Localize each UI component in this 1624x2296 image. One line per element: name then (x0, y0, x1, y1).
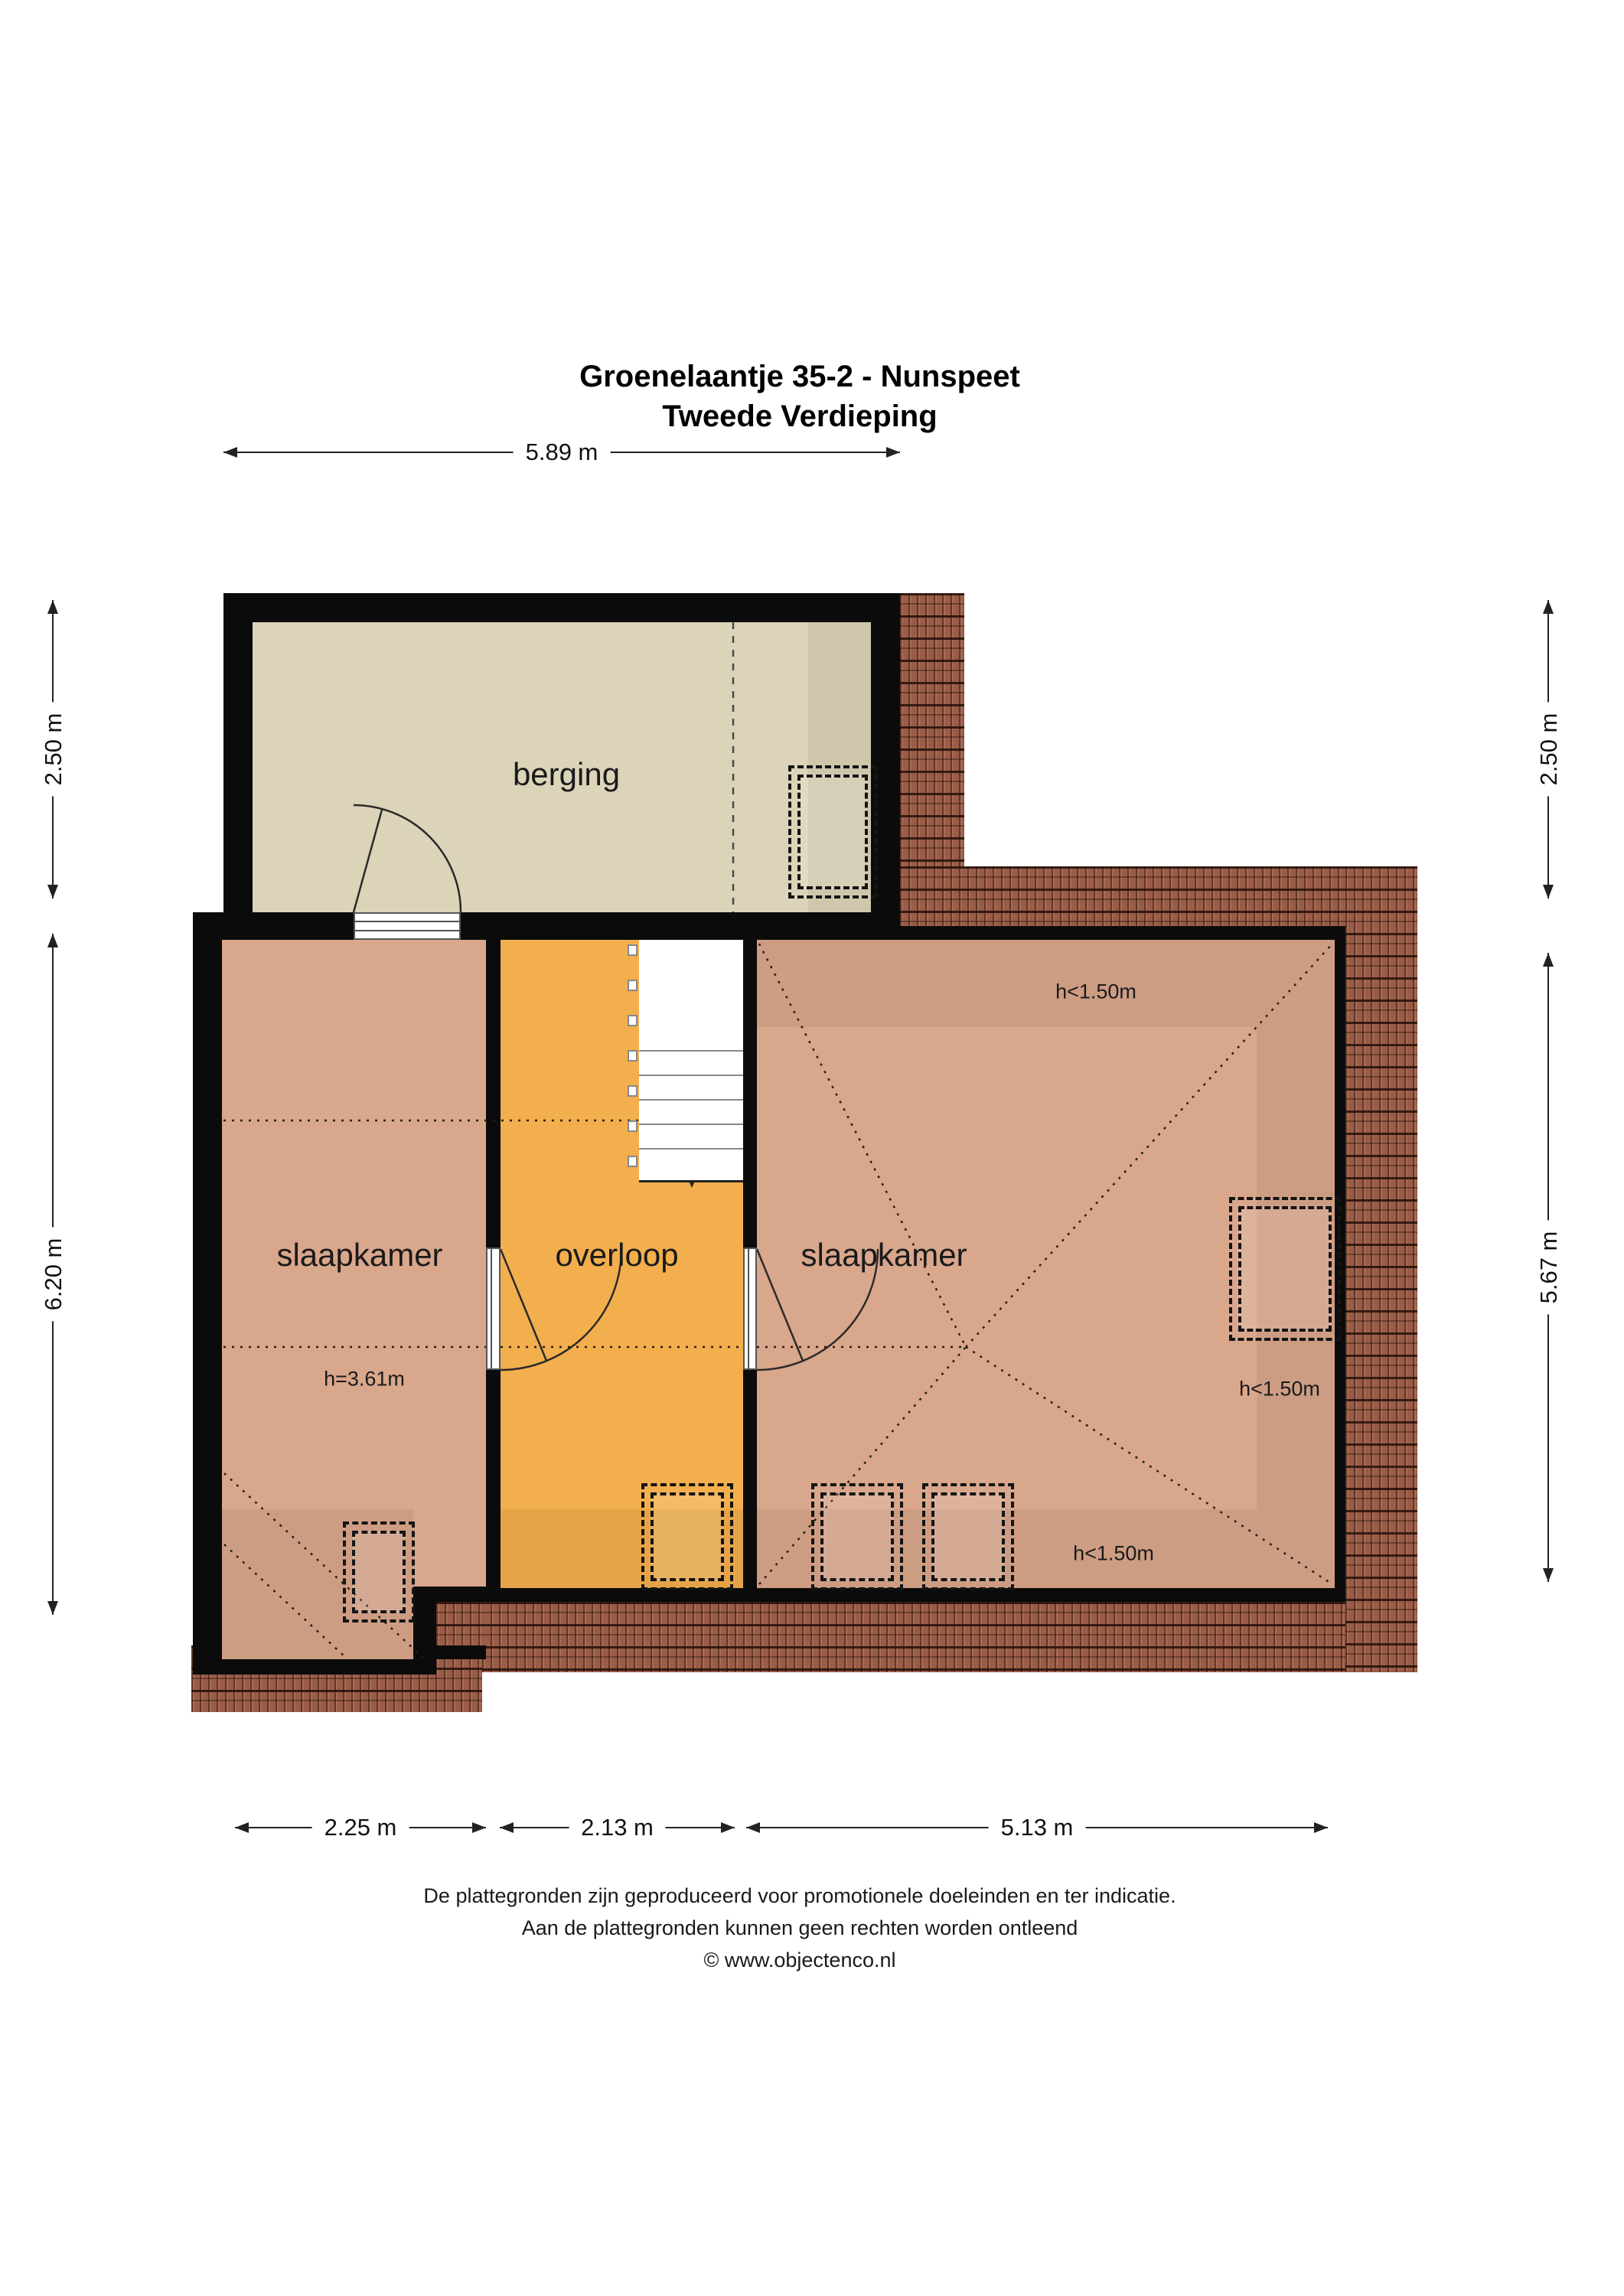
label-height-left-room: h=3.61m (324, 1368, 405, 1391)
skylight-left-room (343, 1521, 415, 1623)
railing-tick (628, 944, 638, 956)
label-slaapkamer-right: slaapkamer (801, 1237, 967, 1274)
label-height-right-top: h<1.50m (1055, 980, 1136, 1004)
floorplan-sheet: Groenelaantje 35-2 - Nunspeet Tweede Ver… (0, 0, 1624, 2296)
right-bedroom-door (743, 1247, 757, 1370)
footer-disclaimer-1: De plattegronden zijn geproduceerd voor … (0, 1884, 1600, 1908)
door-line (491, 1249, 492, 1368)
dimension-left-lower: 6.20 m (52, 934, 54, 1615)
dimension-right-lower: 5.67 m (1547, 953, 1549, 1582)
valley-line-2 (224, 1544, 346, 1658)
stair-tread (639, 1124, 743, 1125)
hip-line-top-left (759, 944, 966, 1347)
railing-tick (628, 980, 638, 991)
dimension-bottom-middle-value: 2.13 m (569, 1814, 666, 1841)
railing-tick (628, 1156, 638, 1167)
dimension-bottom-left: 2.25 m (235, 1827, 486, 1828)
dimension-right-lower-value: 5.67 m (1536, 1221, 1562, 1315)
railing-tick (628, 1050, 638, 1062)
dimension-bottom-middle: 2.13 m (500, 1827, 735, 1828)
skylight-inner (352, 1531, 406, 1613)
stair-tread (639, 1099, 743, 1101)
label-berging: berging (513, 756, 620, 793)
dimension-top: 5.89 m (223, 452, 900, 453)
skylight-right-room-bottom-1 (811, 1483, 903, 1590)
dimension-left-upper-value: 2.50 m (41, 703, 67, 797)
dimension-right-upper-value: 2.50 m (1536, 703, 1562, 797)
railing-tick (628, 1120, 638, 1132)
footer-copyright: © www.objectenco.nl (0, 1949, 1600, 1972)
skylight-inner (1238, 1206, 1332, 1332)
skylight-right-room-side (1229, 1197, 1341, 1341)
dimension-bottom-right: 5.13 m (746, 1827, 1328, 1828)
skylight-right-room-bottom-2 (922, 1483, 1014, 1590)
dimension-right-upper: 2.50 m (1547, 600, 1549, 899)
dimension-top-value: 5.89 m (514, 439, 611, 466)
railing-tick (628, 1015, 638, 1026)
dimension-left-lower-value: 6.20 m (41, 1228, 67, 1322)
stair-tread (639, 1050, 743, 1052)
dimension-bottom-left-value: 2.25 m (312, 1814, 409, 1841)
skylight-inner (651, 1492, 724, 1581)
skylight-inner (931, 1492, 1005, 1581)
stair-railing (626, 940, 639, 1180)
label-height-right-bottom: h<1.50m (1073, 1542, 1154, 1566)
skylight-inner (797, 775, 868, 889)
door-line (355, 930, 459, 931)
door-line (355, 921, 459, 922)
skylight-inner (820, 1492, 894, 1581)
staircase-body (639, 940, 743, 1180)
stair-tread (639, 1148, 743, 1150)
left-bedroom-door (486, 1247, 501, 1370)
staircase (639, 940, 743, 1180)
label-height-right-side: h<1.50m (1239, 1378, 1320, 1401)
label-overloop: overloop (555, 1237, 678, 1274)
footer-disclaimer-2: Aan de plattegronden kunnen geen rechten… (0, 1916, 1600, 1940)
dimension-left-upper: 2.50 m (52, 600, 54, 899)
dimension-bottom-right-value: 5.13 m (989, 1814, 1086, 1841)
skylight-overloop (641, 1483, 733, 1590)
skylight-berging (788, 765, 877, 899)
berging-door (354, 912, 461, 940)
label-slaapkamer-left: slaapkamer (276, 1237, 442, 1274)
stair-tread (639, 1075, 743, 1076)
berging-door-swing-arc (354, 805, 461, 912)
door-line (748, 1249, 749, 1368)
railing-tick (628, 1085, 638, 1097)
